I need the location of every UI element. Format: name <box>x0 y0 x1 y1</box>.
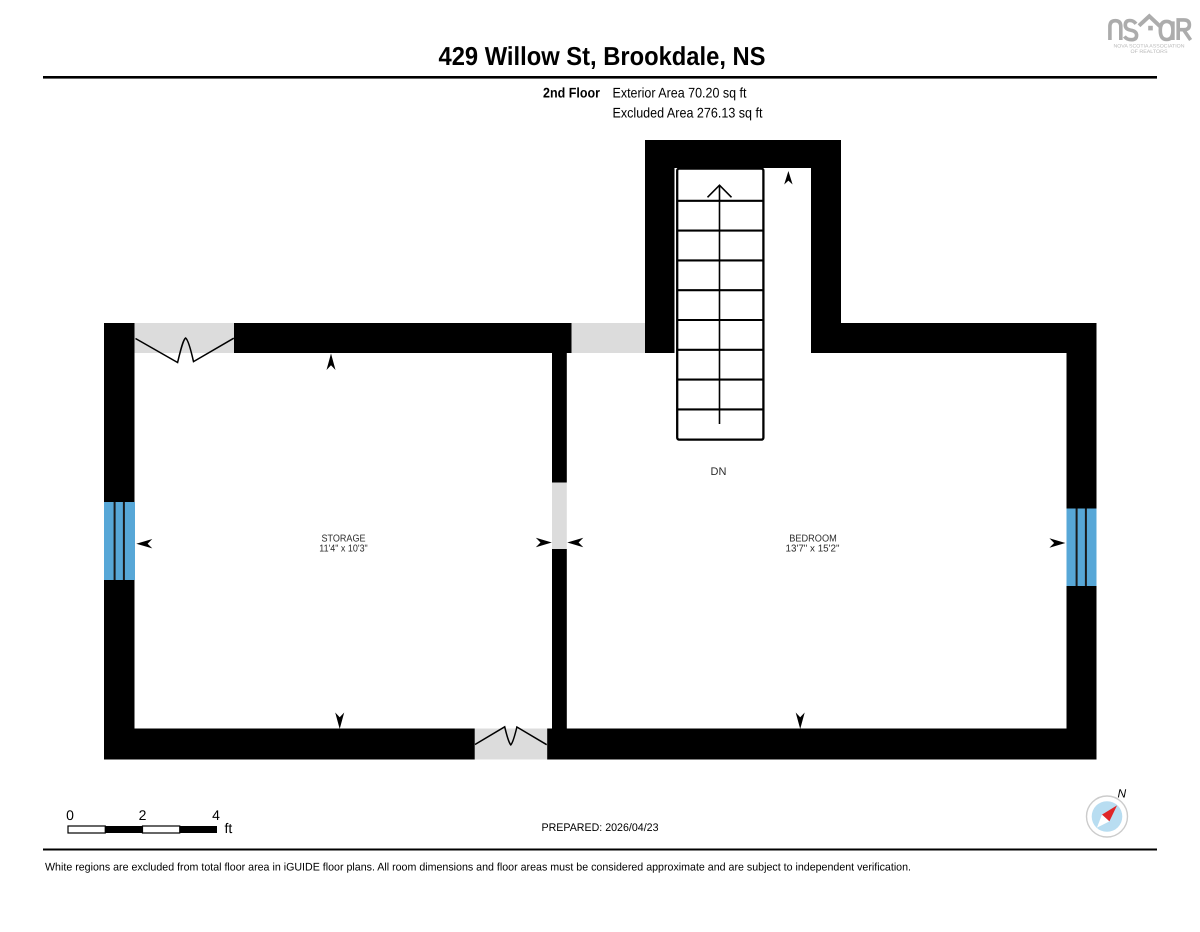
svg-text:N: N <box>1118 787 1127 801</box>
svg-text:2: 2 <box>139 807 147 823</box>
svg-text:OF REALTORS: OF REALTORS <box>1131 49 1169 55</box>
svg-text:13'7" x 15'2": 13'7" x 15'2" <box>786 544 840 555</box>
svg-text:2nd Floor: 2nd Floor <box>543 85 600 101</box>
svg-text:11'4" x 10'3": 11'4" x 10'3" <box>319 544 368 555</box>
svg-text:0: 0 <box>66 807 74 823</box>
svg-text:4: 4 <box>212 807 220 823</box>
svg-text:Excluded Area 276.13 sq ft: Excluded Area 276.13 sq ft <box>613 104 763 120</box>
svg-text:DN: DN <box>711 466 727 478</box>
svg-text:White regions are excluded fro: White regions are excluded from total fl… <box>45 862 911 874</box>
svg-text:ft: ft <box>225 820 233 836</box>
svg-text:PREPARED: 2026/04/23: PREPARED: 2026/04/23 <box>542 822 659 834</box>
svg-text:Exterior Area 70.20 sq ft: Exterior Area 70.20 sq ft <box>613 85 747 101</box>
svg-text:429 Willow St, Brookdale, NS: 429 Willow St, Brookdale, NS <box>439 41 766 71</box>
